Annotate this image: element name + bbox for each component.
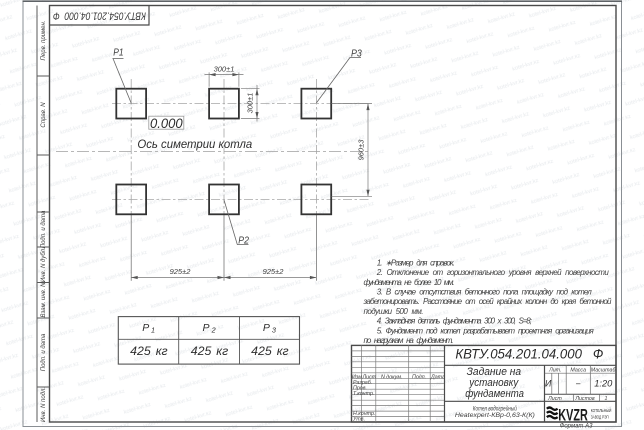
svg-text:Heatexpert-КВр-0,63-К(К): Heatexpert-КВр-0,63-К(К) — [455, 412, 535, 419]
svg-text:Т.контр.: Т.контр. — [353, 391, 374, 397]
svg-text:960±3: 960±3 — [357, 139, 366, 161]
svg-text:Масштаб: Масштаб — [591, 368, 617, 374]
svg-text:Взам. инв. N: Взам. инв. N — [41, 282, 47, 318]
svg-text:4. Закладная деталь фундамента: 4. Закладная деталь фундамента 300 x 300… — [377, 317, 532, 326]
svg-text:забетонировать. Расстояние от: забетонировать. Расстояние от осей крайн… — [363, 297, 613, 306]
svg-text:P ₁: P ₁ — [142, 322, 155, 334]
svg-text:Инв. N подл.: Инв. N подл. — [41, 387, 47, 422]
svg-text:–: – — [575, 379, 581, 388]
svg-text:P ₂: P ₂ — [203, 322, 216, 334]
svg-text:Лист: Лист — [547, 396, 562, 402]
svg-text:Перв. примен.: Перв. примен. — [41, 21, 47, 61]
svg-text:P1: P1 — [113, 48, 123, 59]
svg-text:КВТУ.054.201.04.000 Ф: КВТУ.054.201.04.000 Ф — [455, 347, 603, 362]
svg-text:1: 1 — [605, 396, 608, 402]
svg-text:Подп. и дата: Подп. и дата — [41, 210, 47, 248]
svg-text:КВТУ.054.201.04.000 Ф: КВТУ.054.201.04.000 Ф — [53, 9, 146, 21]
svg-text:Задание на: Задание на — [467, 366, 521, 378]
svg-text:Ось симетрии котла: Ось симетрии котла — [137, 137, 252, 151]
svg-text:300±1: 300±1 — [246, 93, 255, 114]
svg-text:1. ∗Размер для справок.: 1. ∗Размер для справок. — [377, 258, 455, 267]
svg-text:P ₃: P ₃ — [263, 322, 276, 334]
svg-text:Подп. и дата: Подп. и дата — [41, 333, 47, 371]
svg-text:Подп.: Подп. — [412, 375, 426, 381]
svg-text:Утв.: Утв. — [353, 416, 365, 422]
svg-text:Формат А3: Формат А3 — [560, 424, 593, 430]
svg-text:установку: установку — [468, 377, 518, 389]
svg-text:Листов: Листов — [574, 396, 595, 402]
svg-text:925±2: 925±2 — [263, 267, 285, 276]
svg-text:Лит.: Лит. — [548, 368, 561, 374]
svg-text:425 кг: 425 кг — [191, 346, 229, 358]
svg-text:фундамента: фундамента — [465, 388, 524, 400]
svg-text:3. В случае отсутствия бетонно: 3. В случае отсутствия бетонного пола пл… — [377, 288, 592, 297]
svg-text:фундамента не более 10 мм.: фундамента не более 10 мм. — [364, 278, 455, 287]
svg-text:N докум.: N докум. — [381, 375, 402, 381]
svg-text:5. Фундамент под котел разраба: 5. Фундамент под котел разрабатывает про… — [377, 326, 595, 335]
svg-text:1:20: 1:20 — [594, 379, 613, 389]
svg-text:425 кг: 425 кг — [130, 346, 168, 358]
svg-text:925±2: 925±2 — [170, 267, 192, 276]
svg-text:Дата: Дата — [430, 375, 445, 381]
svg-text:Инв. N дубл.: Инв. N дубл. — [41, 247, 47, 282]
svg-text:P3: P3 — [351, 49, 362, 60]
svg-text:И: И — [545, 379, 552, 389]
svg-text:Масса: Масса — [570, 368, 586, 374]
svg-text:по нагрузкам на фундамент.: по нагрузкам на фундамент. — [364, 336, 454, 345]
svg-text:подушки 500 мм.: подушки 500 мм. — [364, 307, 424, 316]
svg-text:Справ. N: Справ. N — [41, 102, 47, 128]
svg-text:300±1: 300±1 — [214, 65, 235, 74]
svg-text:0.000: 0.000 — [150, 115, 183, 131]
svg-text:2. Отклонение от горизонтально: 2. Отклонение от горизонтального уровня … — [376, 268, 610, 277]
svg-text:ЗАВОД РЭП: ЗАВОД РЭП — [591, 414, 609, 420]
svg-text:425 кг: 425 кг — [251, 346, 289, 358]
svg-text:P2: P2 — [238, 236, 249, 247]
svg-text:KVZR: KVZR — [558, 405, 588, 424]
